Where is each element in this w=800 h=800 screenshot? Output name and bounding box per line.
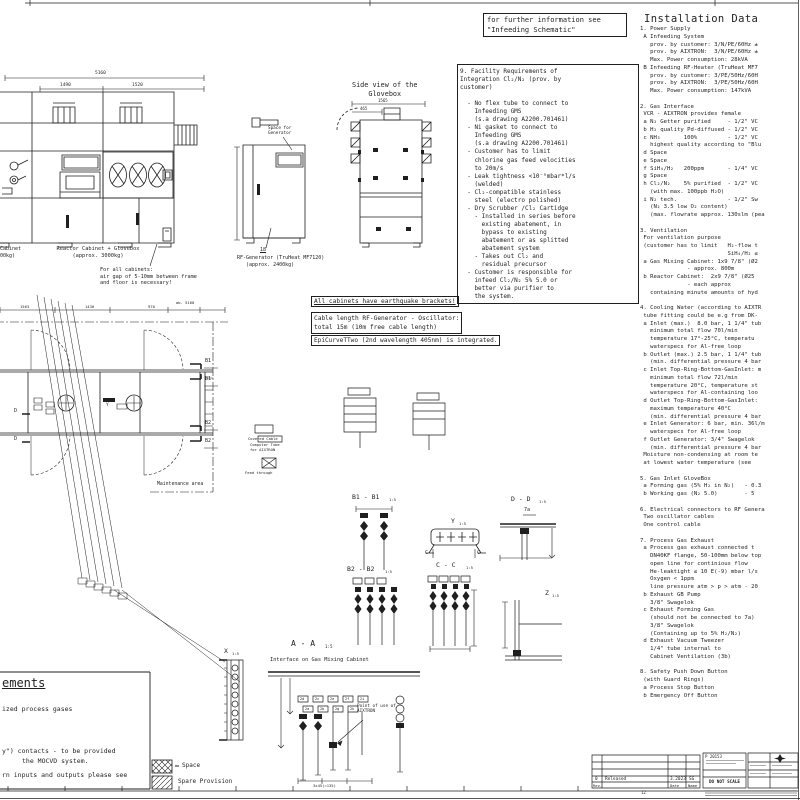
side-view-dim2: 465 xyxy=(360,106,367,111)
side-view-dim1: 1565 xyxy=(378,98,388,103)
plan-dim-c: 970 xyxy=(148,304,155,309)
maintenance-area-label: Maintenance area xyxy=(157,482,203,487)
section-b2-title: B2 - B2 xyxy=(347,565,374,573)
titleblock-rev-desc: Released xyxy=(605,777,626,782)
titleblock-no-scale: DO NOT SCALE xyxy=(703,780,746,785)
titleblock-col-rev: Rev. xyxy=(593,783,602,788)
section-x xyxy=(219,660,243,740)
section-z xyxy=(502,600,562,660)
aa-tag: 2g xyxy=(335,707,339,711)
facility-requirements-box: 9. Facility Requirements of Integration … xyxy=(457,64,639,304)
legend-space-label: Space xyxy=(182,762,200,769)
aa-tag: 2b xyxy=(320,707,324,711)
aa-tag: 2h xyxy=(350,707,354,711)
partial-line4: rn inputs and outputs please see xyxy=(2,771,127,779)
plan-d-tag-1: D xyxy=(14,408,17,414)
aa-tag: 2c xyxy=(315,697,319,701)
rf-generator-label: RF-Generator (TruHeat MF7120) (approx. 2… xyxy=(237,255,324,269)
section-x-scale: 1:5 xyxy=(232,651,239,656)
titleblock-rev-date: 3.2023 xyxy=(670,777,686,782)
plan-dim-total: ab. 5160 xyxy=(176,300,194,305)
legend-swatches xyxy=(152,760,179,789)
titleblock-rev-name: SG xyxy=(689,777,694,782)
plan-dim-b: 1430 xyxy=(85,304,94,309)
section-cc xyxy=(428,576,477,652)
point-of-use-label: Point of use of AIXTRON xyxy=(357,704,396,715)
section-z-title: Z xyxy=(545,589,549,597)
floor-gap-note: For all cabinets: air gap of 5-10mm betw… xyxy=(100,267,197,287)
titleblock-col-date: Date xyxy=(670,783,679,788)
section-y-title: Y xyxy=(451,517,455,525)
computer-tube-label: Computer Tube for AIXTRON xyxy=(250,443,280,452)
installation-data-title: Installation Data xyxy=(644,13,758,25)
elevation-dim-total: 5160 xyxy=(95,71,106,76)
partial-line3: the MOCVD system. xyxy=(22,757,89,765)
legend-spare-label: Spare Provision xyxy=(178,778,232,785)
further-info-note: for further information see "Infeeding S… xyxy=(483,13,627,37)
cable-length-note: Cable length RF-Generator - Oscillator: … xyxy=(311,312,462,334)
section-b2 xyxy=(353,578,398,645)
installation-data-text: 1. Power Supply A Infeeding System prov.… xyxy=(640,26,765,700)
section-b1-title: B1 - B1 xyxy=(352,493,379,501)
section-y-cmark-right: C xyxy=(477,550,480,556)
section-y-cmark-left: C xyxy=(425,550,428,556)
plan-b2-tag-1: B2 xyxy=(205,420,211,426)
aa-tag: 2f xyxy=(345,697,349,701)
titleblock-col-name: Name xyxy=(688,783,697,788)
partial-heading: ements xyxy=(2,676,45,690)
rf-generator-elevation xyxy=(234,118,305,248)
section-b2-scale: 1:5 xyxy=(385,569,392,574)
feed-through-label: Feed through xyxy=(245,470,272,475)
covered-cable-label: Covered Cable xyxy=(248,436,278,441)
section-aa xyxy=(268,672,420,784)
section-aa-subtitle: Interface on Gas Mixing Cabinet xyxy=(270,657,369,663)
titleblock-rev: 0 xyxy=(595,777,598,782)
section-aa-scale: 1:5 xyxy=(325,644,333,649)
elevation-dim-left: 1490 xyxy=(60,83,71,88)
aa-tag: 2a xyxy=(305,707,309,711)
section-z-scale: 1:5 xyxy=(552,593,559,598)
aa-tag: 2d xyxy=(300,697,304,701)
epicurve-note: EpiCurveTTwo (2nd wavelength 405nm) is i… xyxy=(311,335,500,346)
balloon-18: 18 xyxy=(260,247,266,253)
section-cc-title: C - C xyxy=(436,561,456,569)
plan-d-tag-2: D xyxy=(14,436,17,442)
plan-b1-tag-1: B1 xyxy=(205,358,211,364)
cabinet-label-left-fragment: Cabinet 00kg) xyxy=(0,246,21,259)
leader-fan xyxy=(37,295,240,682)
side-view-title: Side view of the Glovebox xyxy=(352,81,417,99)
mid-component-details xyxy=(255,388,445,468)
section-aa-dim: 3x45(=135) xyxy=(313,783,336,788)
earthquake-note: All cabinets have earthquake brackets! xyxy=(311,296,459,307)
section-x-title: X xyxy=(224,647,228,655)
title-block xyxy=(592,753,798,796)
section-b1 xyxy=(356,506,392,570)
aa-tag: 2i xyxy=(360,697,364,701)
reactor-cabinet-label: Reactor Cabinet + Glovebox (approx. 3000… xyxy=(48,246,148,260)
partial-line1: ized process gases xyxy=(2,705,72,713)
plan-b2-tag-2: B2 xyxy=(205,438,211,444)
plan-dim-a: 1563 xyxy=(20,304,29,309)
floor-plan xyxy=(0,307,228,492)
partial-line2: y") contacts - to be provided xyxy=(2,747,116,755)
section-dd-ref: 7a xyxy=(524,507,530,513)
front-elevation xyxy=(0,75,204,266)
section-dd-scale: 1:5 xyxy=(539,499,546,504)
section-dd-title: D - D xyxy=(511,495,531,503)
elevation-dim-right: 1520 xyxy=(132,83,143,88)
section-aa-title: A - A xyxy=(291,639,315,648)
drawing-sheet: for further information see "Infeeding S… xyxy=(0,0,800,800)
titleblock-doc-no: P 20153 xyxy=(705,754,722,759)
space-for-generator-label: Space for Generator xyxy=(268,126,291,136)
section-b1-scale: 1:5 xyxy=(389,497,396,502)
plan-y-tag: Y xyxy=(106,403,109,408)
aa-tag: 2e xyxy=(330,697,334,701)
glovebox-side-view xyxy=(337,101,431,247)
titleblock-grid-ref: 12 xyxy=(641,790,646,795)
section-y-scale: 1:5 xyxy=(459,521,466,526)
section-dd xyxy=(500,515,556,561)
plan-b1-tag-2: B1 xyxy=(205,376,211,382)
section-cc-scale: 1:5 xyxy=(466,565,473,570)
